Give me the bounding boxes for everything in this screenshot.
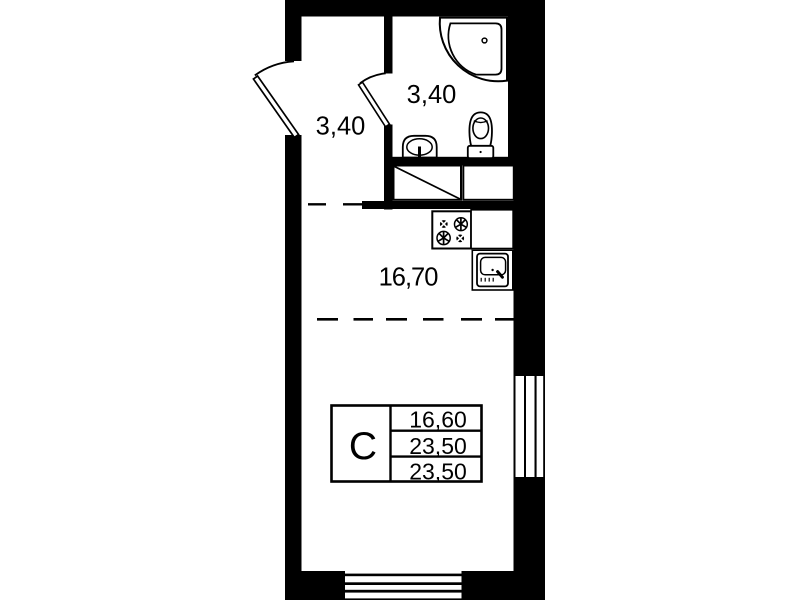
svg-text:16,70: 16,70 — [379, 264, 439, 292]
svg-text:3,40: 3,40 — [407, 81, 457, 109]
svg-text:С: С — [349, 425, 377, 468]
svg-text:23,50: 23,50 — [409, 459, 467, 485]
svg-text:16,60: 16,60 — [409, 407, 467, 433]
svg-text:23,50: 23,50 — [409, 433, 467, 459]
svg-text:3,40: 3,40 — [316, 113, 366, 141]
